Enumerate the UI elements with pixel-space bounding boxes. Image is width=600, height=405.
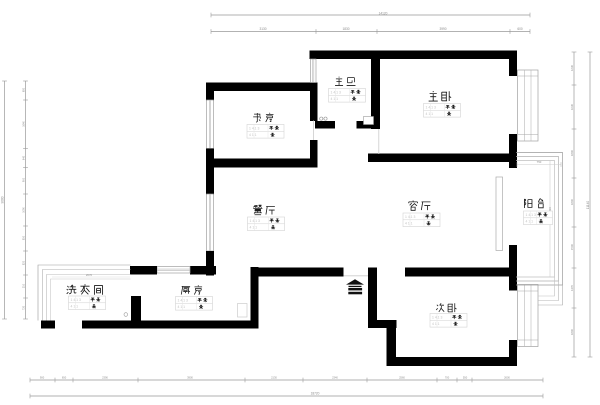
svg-text:820: 820 [22,260,25,265]
svg-text:680: 680 [22,87,25,92]
svg-text:1 4.1 3: 1 4.1 3 [432,315,442,319]
svg-text:4 1 1: 4 1 1 [432,322,440,326]
svg-text:640: 640 [22,155,25,160]
svg-text:1640: 1640 [22,121,25,127]
svg-text:1 4.1 3: 1 4.1 3 [250,219,260,223]
svg-text:1630: 1630 [570,103,574,110]
svg-text:2390: 2390 [102,376,108,380]
svg-text:1470: 1470 [570,284,574,291]
svg-text:11140: 11140 [586,201,590,210]
svg-text:700: 700 [445,376,450,380]
svg-text:900: 900 [40,376,45,380]
svg-text:1800: 1800 [570,328,574,335]
svg-text:850: 850 [22,235,25,240]
svg-text:900: 900 [22,177,25,182]
svg-text:1 4.1 3: 1 4.1 3 [178,298,188,302]
svg-text:1800: 1800 [570,198,574,205]
svg-text:4 1 1: 4 1 1 [426,112,434,116]
svg-text:550: 550 [463,376,468,380]
svg-text:1230: 1230 [570,64,574,71]
svg-text:9080: 9080 [0,196,4,203]
svg-text:310: 310 [22,283,25,288]
svg-text:2130: 2130 [271,376,277,380]
svg-text:1 4.1 3: 1 4.1 3 [71,298,81,302]
svg-text:1 4.1 3: 1 4.1 3 [526,213,536,217]
svg-text:3130: 3130 [259,27,266,31]
svg-text:14120: 14120 [379,12,388,16]
svg-text:4 1 1: 4 1 1 [526,220,534,224]
svg-text:600: 600 [517,27,523,31]
svg-text:1500: 1500 [570,243,574,250]
svg-text:1 4.1 3: 1 4.1 3 [405,215,415,219]
svg-text:4 1 1: 4 1 1 [71,305,79,309]
svg-text:1 4.1 3: 1 4.1 3 [331,90,341,94]
svg-text:4 1 1: 4 1 1 [249,133,257,137]
svg-text:1 4.1 3: 1 4.1 3 [249,126,259,130]
svg-text:3900: 3900 [187,376,193,380]
svg-text:3990: 3990 [439,27,446,31]
svg-text:1830: 1830 [342,27,349,31]
svg-text:4 1 1: 4 1 1 [331,97,339,101]
svg-text:2670: 2670 [86,273,93,277]
svg-text:4 1 1: 4 1 1 [405,222,413,226]
svg-text:4 1 1: 4 1 1 [178,305,186,309]
svg-text:2560: 2560 [399,376,405,380]
svg-text:1800: 1800 [570,149,574,156]
svg-text:18720: 18720 [311,392,320,396]
svg-text:1 4.1 3: 1 4.1 3 [426,105,436,109]
svg-text:750: 750 [537,160,542,164]
svg-text:1090: 1090 [22,207,25,213]
svg-text:730: 730 [22,305,25,310]
svg-text:650: 650 [62,376,67,380]
svg-text:2340: 2340 [332,376,338,380]
svg-text:4 1 1: 4 1 1 [250,226,258,230]
svg-text:2600: 2600 [504,376,510,380]
